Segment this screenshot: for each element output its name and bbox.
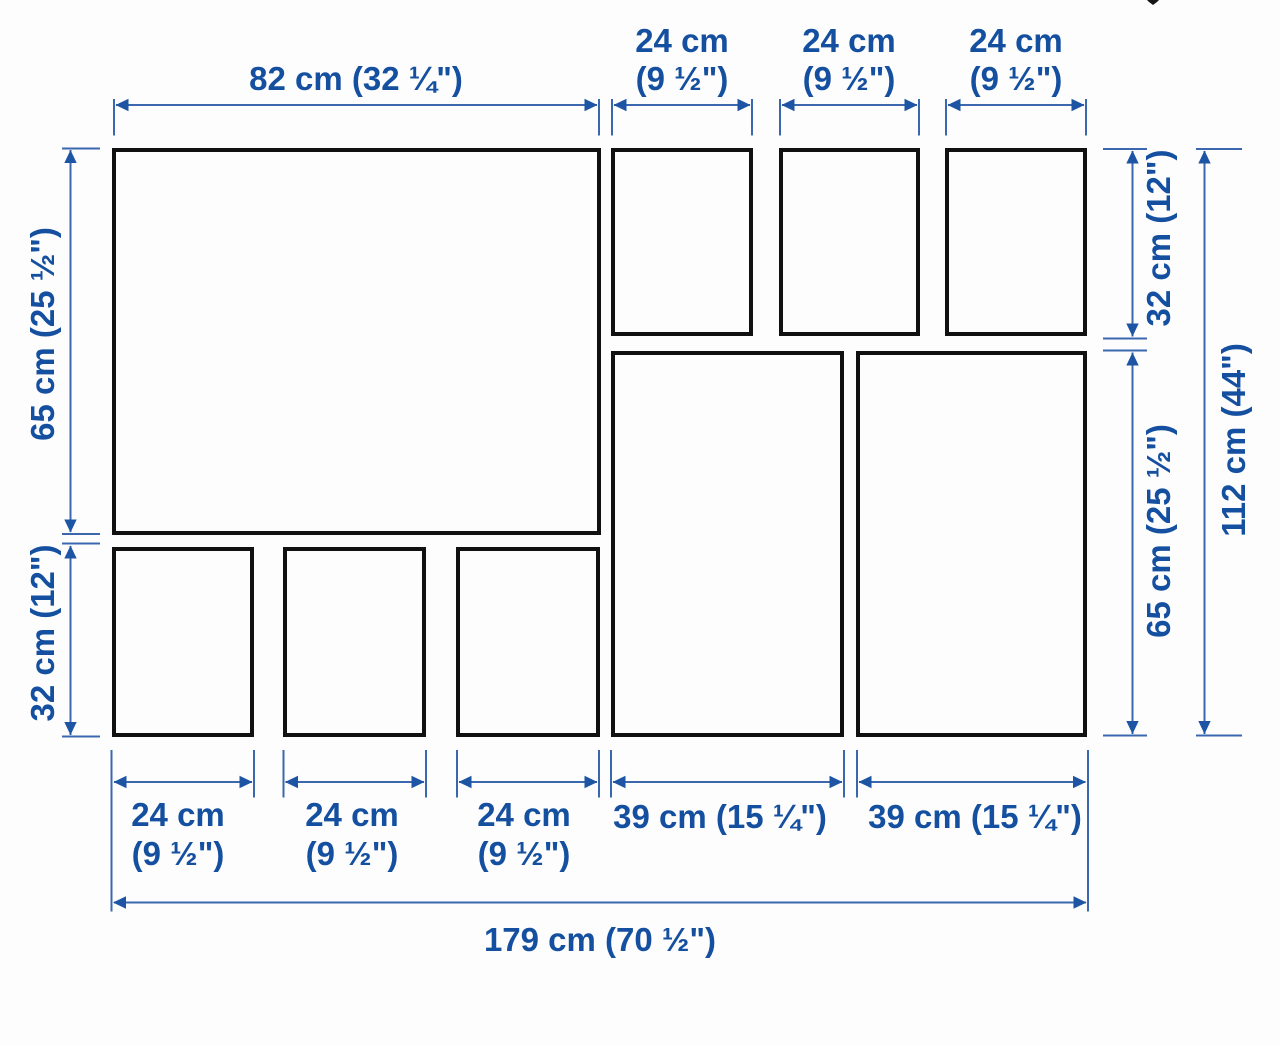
svg-text:82 cm (32 ¼"): 82 cm (32 ¼") (249, 60, 463, 97)
svg-text:39 cm (15 ¼"): 39 cm (15 ¼") (868, 798, 1082, 835)
svg-text:32 cm (12"): 32 cm (12") (24, 544, 61, 721)
svg-text:32 cm (12"): 32 cm (12") (1140, 149, 1177, 326)
svg-text:39 cm (15 ¼"): 39 cm (15 ¼") (613, 798, 827, 835)
svg-text:(9 ½"): (9 ½") (132, 835, 225, 872)
svg-text:(9 ½"): (9 ½") (970, 60, 1063, 97)
svg-text:(9 ½"): (9 ½") (306, 835, 399, 872)
svg-text:(9 ½"): (9 ½") (803, 60, 896, 97)
svg-text:24 cm: 24 cm (969, 22, 1063, 59)
svg-text:24 cm: 24 cm (305, 796, 399, 833)
svg-text:(9 ½"): (9 ½") (636, 60, 729, 97)
svg-text:24 cm: 24 cm (635, 22, 729, 59)
svg-text:179 cm (70 ½"): 179 cm (70 ½") (484, 921, 716, 958)
svg-text:(9 ½"): (9 ½") (478, 835, 571, 872)
svg-text:112 cm (44"): 112 cm (44") (1215, 343, 1252, 537)
svg-text:24 cm: 24 cm (477, 796, 571, 833)
svg-text:24 cm: 24 cm (802, 22, 896, 59)
svg-text:65 cm (25 ½"): 65 cm (25 ½") (24, 227, 61, 441)
svg-text:65 cm (25 ½"): 65 cm (25 ½") (1140, 424, 1177, 638)
svg-text:24 cm: 24 cm (131, 796, 225, 833)
